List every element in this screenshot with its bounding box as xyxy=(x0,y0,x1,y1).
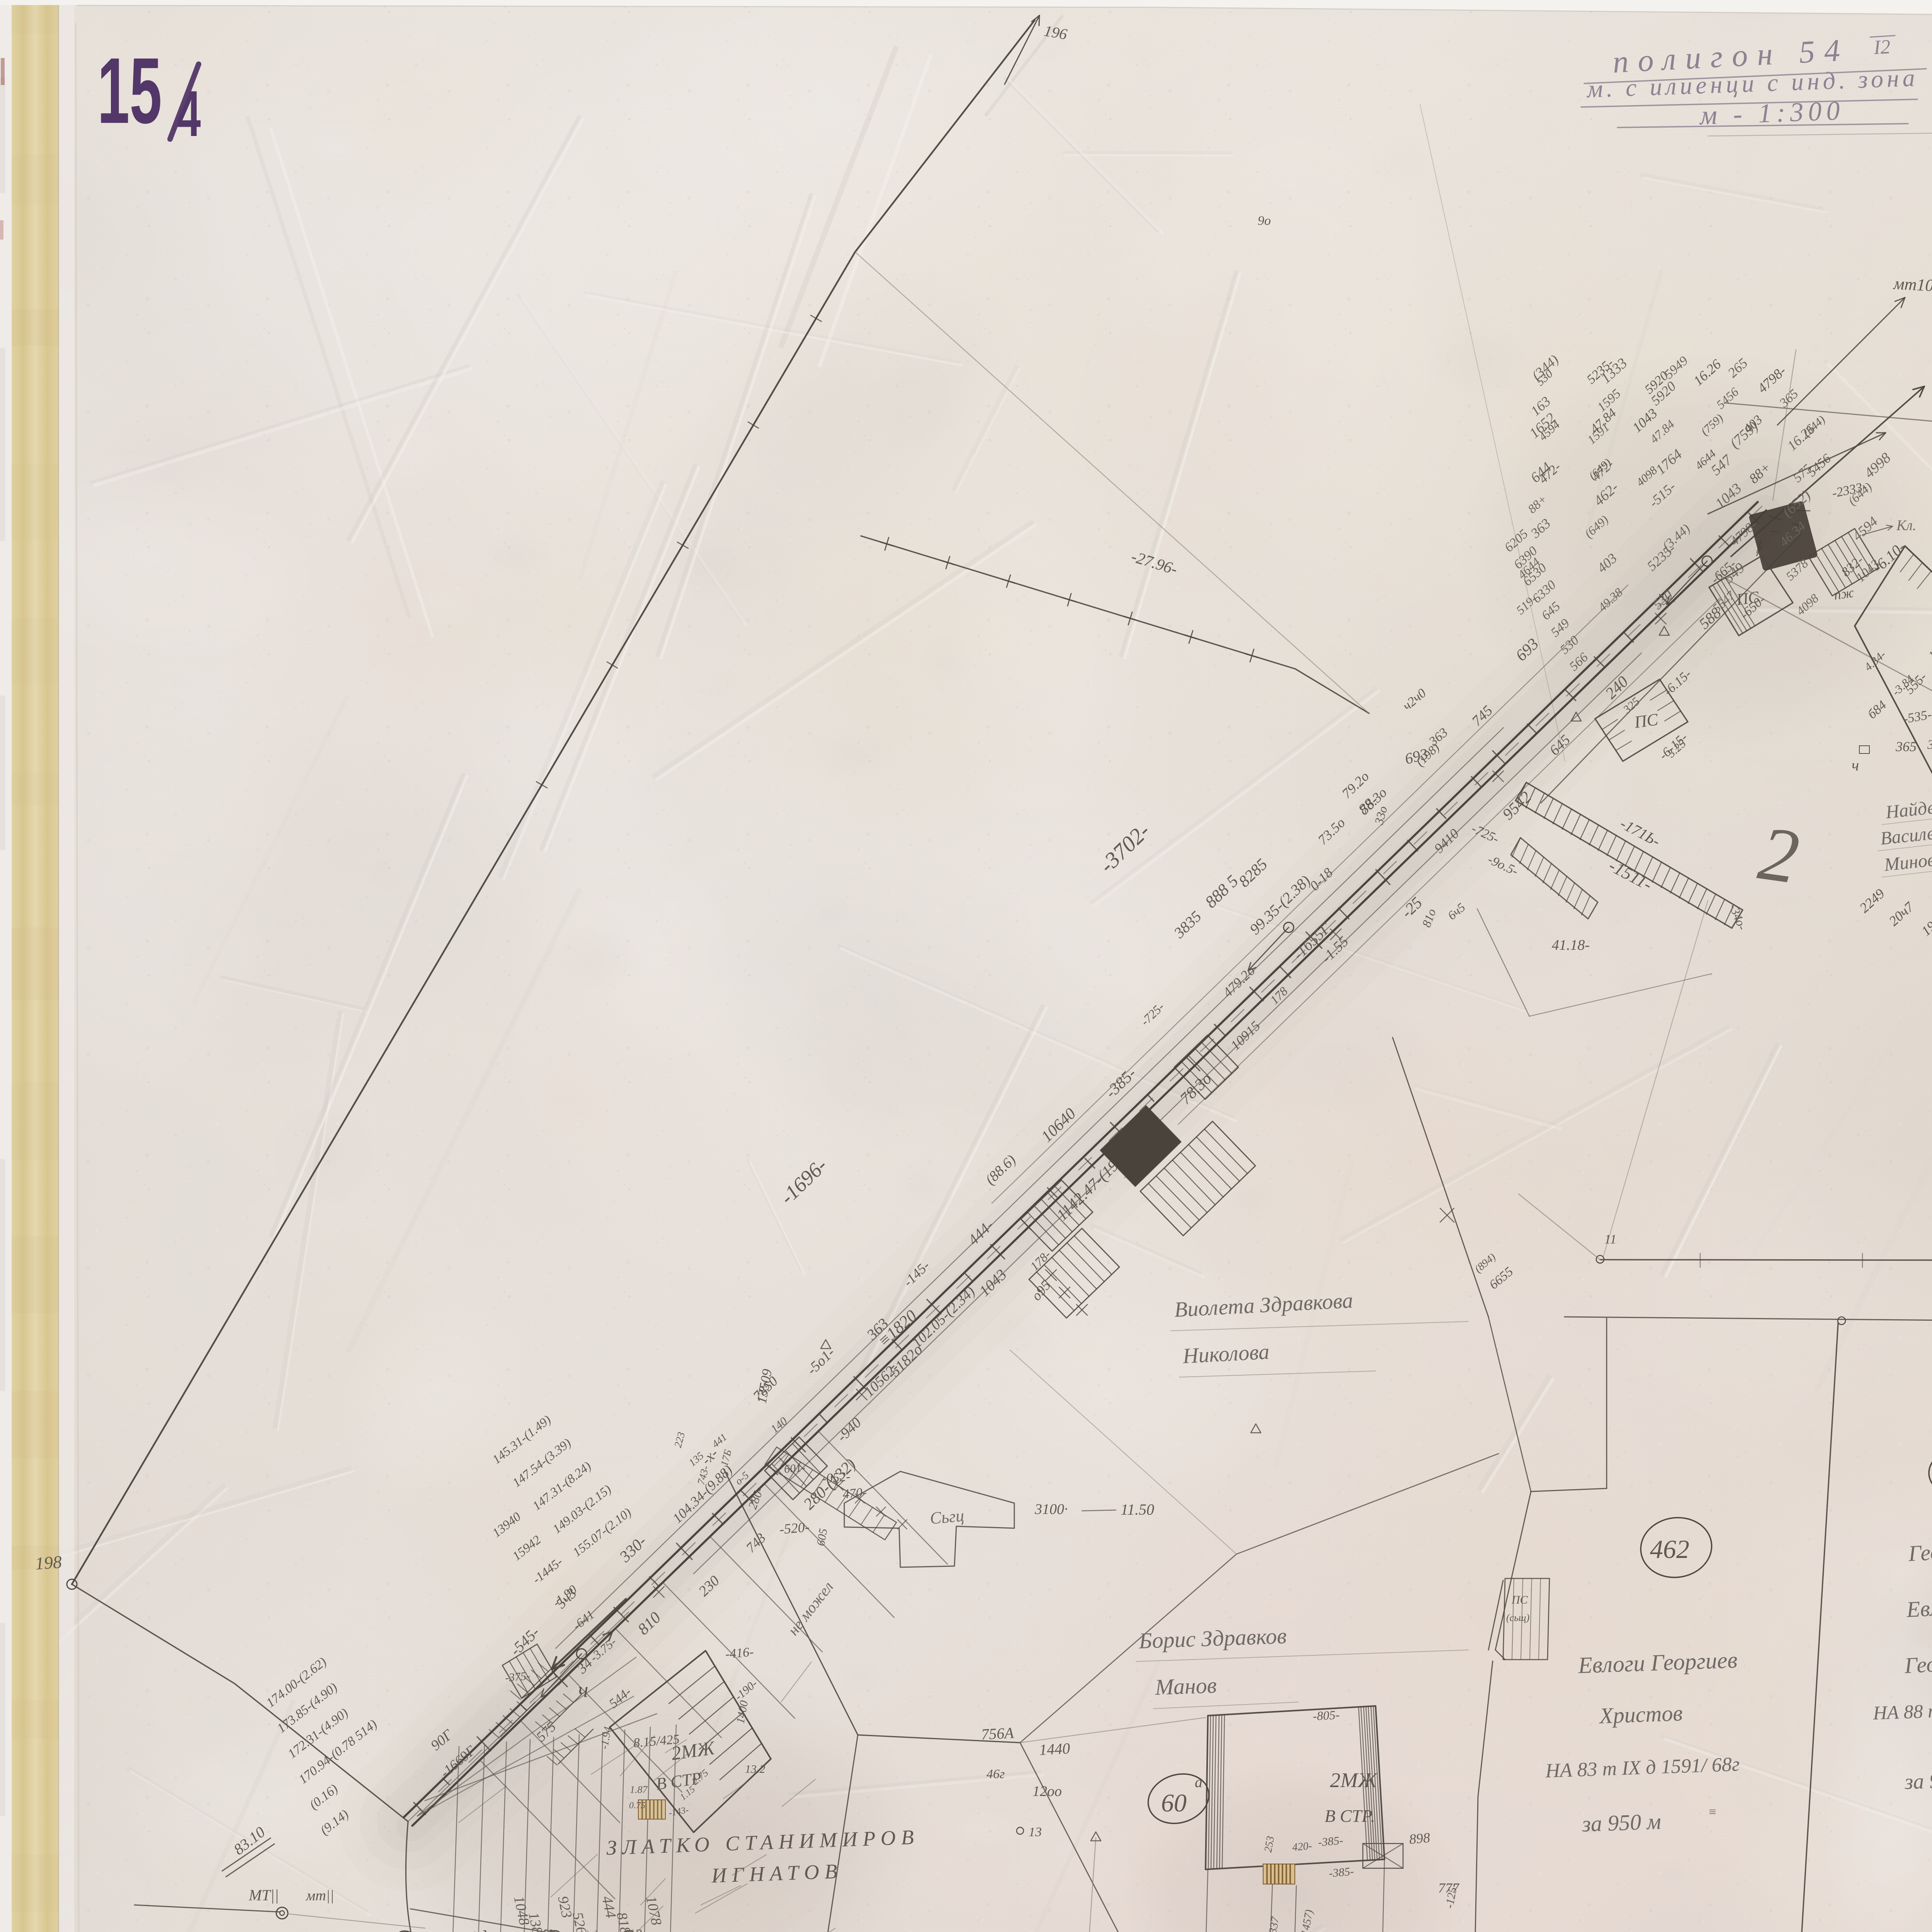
svg-text:15: 15 xyxy=(97,38,162,143)
svg-text:за 950 м: за 950 м xyxy=(1581,1809,1662,1837)
svg-text:В СТР.: В СТР. xyxy=(1325,1806,1375,1826)
svg-text:мт10: мт10 xyxy=(1892,274,1932,295)
svg-text:11.50: 11.50 xyxy=(1121,1501,1154,1518)
svg-text:462: 462 xyxy=(1650,1534,1689,1564)
svg-text:а: а xyxy=(1195,1773,1202,1791)
svg-text:Евлогиев: Евлогиев xyxy=(1905,1593,1932,1622)
svg-text:-385-: -385- xyxy=(1328,1865,1355,1880)
svg-text:898: 898 xyxy=(1408,1830,1430,1847)
svg-text:11: 11 xyxy=(1604,1232,1616,1247)
svg-text:Манов: Манов xyxy=(1154,1672,1217,1700)
svg-text:Георгиев: Георгиев xyxy=(1903,1649,1932,1678)
svg-text:41.18-: 41.18- xyxy=(1552,937,1590,953)
svg-text:1.87: 1.87 xyxy=(630,1784,648,1795)
svg-text:за 905 м: за 905 м xyxy=(1904,1767,1932,1794)
svg-text:ч: ч xyxy=(1852,757,1859,774)
svg-text:≡: ≡ xyxy=(1708,1805,1717,1819)
svg-text:46г: 46г xyxy=(986,1767,1005,1781)
svg-text:Борис Здравков: Борис Здравков xyxy=(1138,1623,1287,1653)
svg-text:3100·: 3100· xyxy=(1034,1501,1068,1517)
svg-text:12оо: 12оо xyxy=(1032,1783,1062,1799)
svg-text:13: 13 xyxy=(1029,1825,1042,1839)
svg-text:4: 4 xyxy=(177,78,201,150)
svg-text:756А: 756А xyxy=(981,1724,1014,1743)
svg-text:ПС: ПС xyxy=(1633,710,1660,732)
svg-text:60: 60 xyxy=(1161,1789,1187,1817)
svg-text:(сьщ): (сьщ) xyxy=(1506,1612,1529,1623)
svg-text:3.65: 3.65 xyxy=(1927,738,1932,752)
svg-text:Христов: Христов xyxy=(1598,1701,1683,1729)
svg-text:ИГНАТОВ: ИГНАТОВ xyxy=(711,1859,843,1887)
svg-text:198: 198 xyxy=(34,1552,62,1573)
svg-text:Георги: Георги xyxy=(1907,1537,1932,1566)
svg-text:0.75: 0.75 xyxy=(629,1801,645,1811)
svg-text:2МЖ: 2МЖ xyxy=(1330,1769,1378,1792)
svg-text:-416-: -416- xyxy=(724,1645,754,1662)
svg-text:мт||: мт|| xyxy=(305,1888,334,1904)
svg-text:9о: 9о xyxy=(1258,214,1271,228)
svg-text:I2: I2 xyxy=(1873,36,1891,59)
svg-text:470-: 470- xyxy=(842,1485,867,1502)
svg-text:-375-: -375- xyxy=(505,1669,531,1684)
svg-text:МТ||: МТ|| xyxy=(248,1886,279,1904)
svg-text:-805-: -805- xyxy=(1312,1708,1340,1723)
svg-text:-385-: -385- xyxy=(1318,1834,1344,1849)
svg-text:Николова: Николова xyxy=(1182,1340,1270,1368)
svg-text:Сьгц: Сьгц xyxy=(929,1506,965,1528)
svg-text:ПС: ПС xyxy=(1511,1594,1528,1606)
svg-text:пж: пж xyxy=(1833,585,1855,603)
svg-text:1440: 1440 xyxy=(1039,1740,1070,1759)
svg-text:-520-: -520- xyxy=(779,1519,810,1537)
svg-text:Кл.: Кл. xyxy=(1896,517,1916,534)
svg-text:13.2: 13.2 xyxy=(745,1763,765,1776)
svg-text:420-: 420- xyxy=(1292,1840,1313,1854)
svg-text:365: 365 xyxy=(1895,739,1917,754)
